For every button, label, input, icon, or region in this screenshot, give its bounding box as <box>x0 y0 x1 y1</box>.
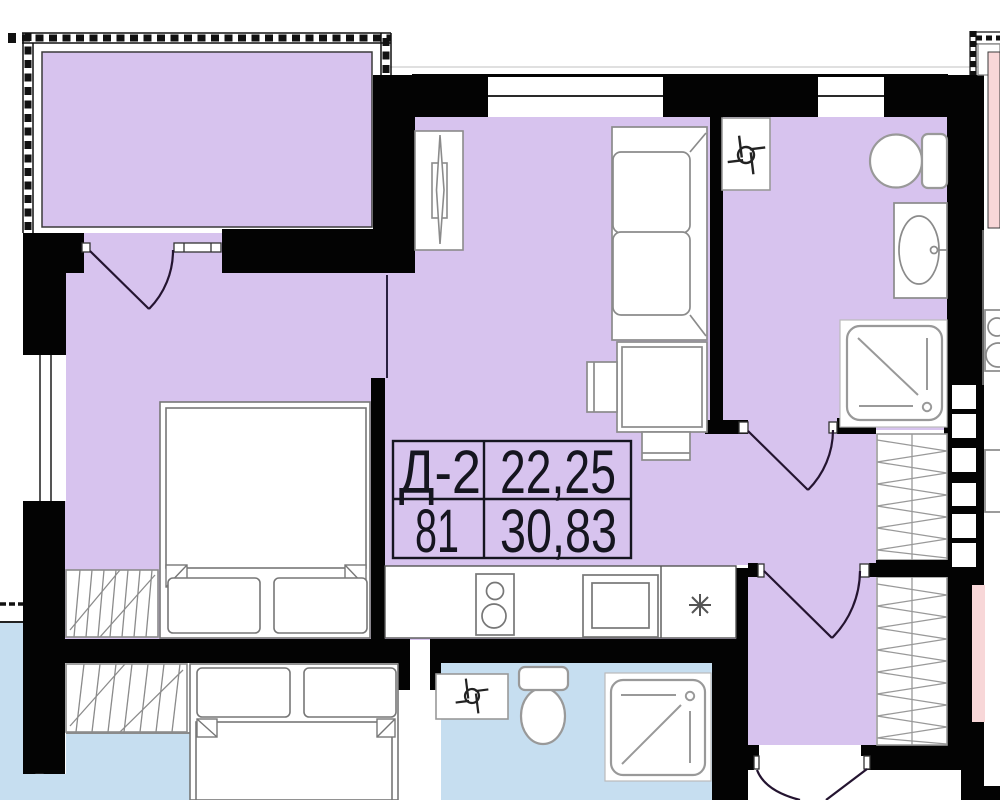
svg-text:22,25: 22,25 <box>500 438 616 506</box>
svg-text:Д-2: Д-2 <box>399 438 481 506</box>
svg-text:81: 81 <box>415 497 459 565</box>
svg-text:30,83: 30,83 <box>500 497 617 565</box>
